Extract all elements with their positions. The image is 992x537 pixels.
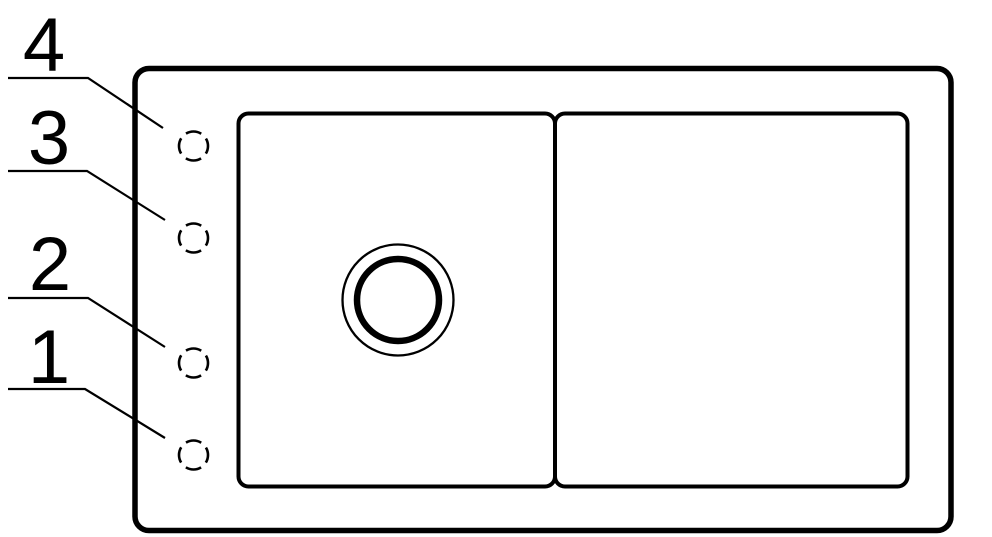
- tap-hole-2: [179, 349, 208, 378]
- tap-hole-4: [179, 132, 208, 161]
- callout-label-1: 1: [28, 315, 70, 400]
- sink-rim-outline: [135, 69, 951, 531]
- figure-canvas: 4 3 2 1: [0, 0, 992, 537]
- drain-hole: [357, 259, 439, 341]
- callout-label-4: 4: [23, 3, 65, 88]
- sink-top-view-diagram: 4 3 2 1: [0, 0, 992, 537]
- right-bowl-outline: [555, 114, 908, 487]
- callout-label-3: 3: [28, 96, 70, 181]
- callout-label-2: 2: [29, 222, 71, 307]
- tap-hole-3: [179, 224, 208, 253]
- left-bowl-outline: [239, 114, 556, 487]
- tap-hole-1: [179, 441, 208, 470]
